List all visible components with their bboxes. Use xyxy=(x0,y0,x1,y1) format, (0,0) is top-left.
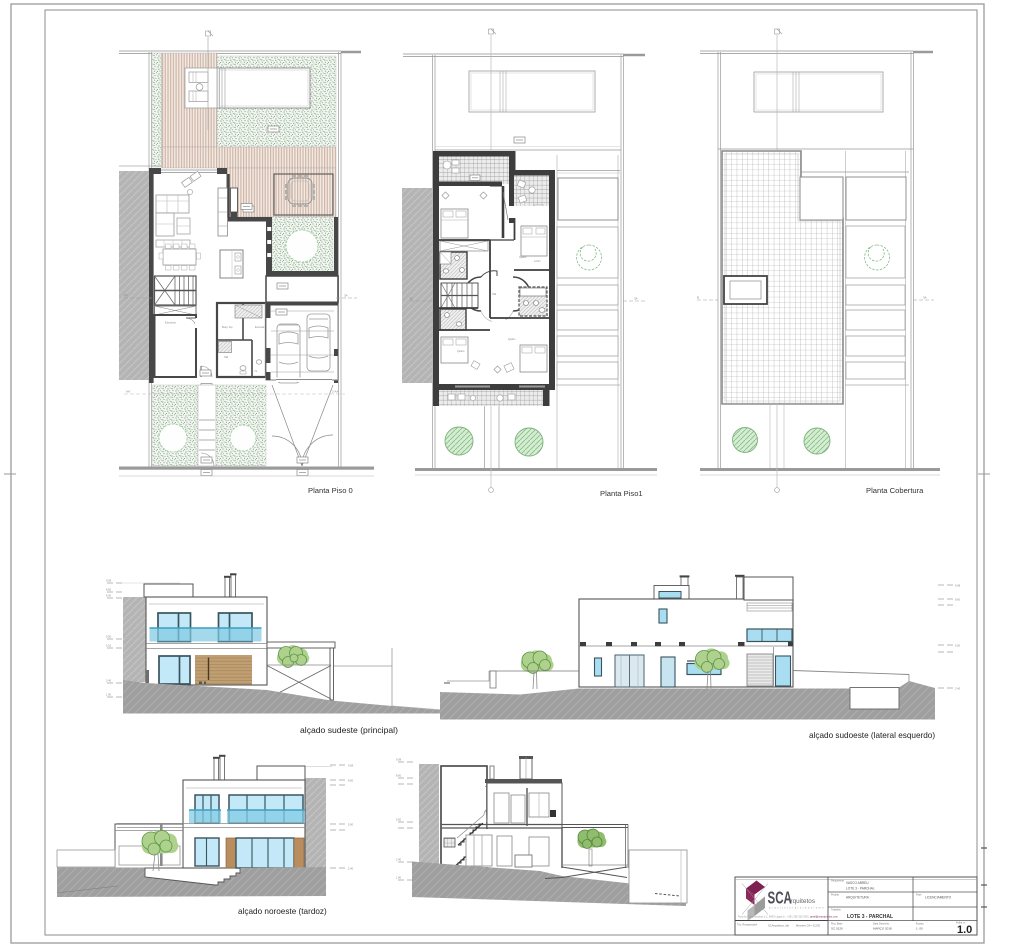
svg-text:Proj. Base: Proj. Base xyxy=(831,923,843,926)
svg-text:8.60: 8.60 xyxy=(396,774,402,778)
svg-text:1.90: 1.90 xyxy=(106,693,112,697)
svg-text:Membro OA • 11235: Membro OA • 11235 xyxy=(796,924,821,928)
svg-text:LICENCIAMENTO: LICENCIAMENTO xyxy=(925,896,952,900)
svg-text:Planta Piso1: Planta Piso1 xyxy=(600,489,643,498)
svg-text:3A: 3A xyxy=(344,294,348,298)
svg-text:9.08: 9.08 xyxy=(955,584,961,588)
svg-text:5.50: 5.50 xyxy=(955,644,961,648)
svg-text:I.S.: I.S. xyxy=(254,370,258,373)
svg-text:LOTE 3 - PARCHAL: LOTE 3 - PARCHAL xyxy=(846,887,875,891)
svg-text:Escritorio: Escritorio xyxy=(165,321,176,325)
svg-text:5.20: 5.20 xyxy=(106,644,112,648)
svg-text:5.50: 5.50 xyxy=(106,635,112,639)
svg-text:a r q u i t e t u r a | u r b: a r q u i t e t u r a | u r b a n i s m … xyxy=(769,907,824,910)
svg-text:Téc. Responsável: Téc. Responsável xyxy=(737,924,757,927)
svg-text:1.90: 1.90 xyxy=(396,876,402,880)
svg-text:alçado sudeste (principal): alçado sudeste (principal) xyxy=(300,725,398,735)
svg-text:3A: 3A xyxy=(634,297,638,301)
svg-text:8.60: 8.60 xyxy=(955,598,961,602)
svg-text:2.40: 2.40 xyxy=(955,687,961,691)
svg-text:Escala: Escala xyxy=(916,923,924,926)
svg-text:SCArquitetos, lda: SCArquitetos, lda xyxy=(768,924,789,928)
svg-text:MARÇO 2018: MARÇO 2018 xyxy=(873,927,892,931)
svg-text:rquitetos: rquitetos xyxy=(791,898,816,905)
svg-text:Escovad.: Escovad. xyxy=(255,326,265,329)
svg-text:Projeto: Projeto xyxy=(831,894,840,897)
svg-text:FF: FF xyxy=(124,294,128,298)
svg-text:Trabalho: Trabalho xyxy=(831,909,841,912)
svg-text:VASCO ABREU: VASCO ABREU xyxy=(846,881,869,885)
svg-text:Hall: Hall xyxy=(224,356,229,359)
svg-text:ARQUITETURA: ARQUITETURA xyxy=(846,896,870,900)
svg-text:Quarto: Quarto xyxy=(508,338,516,341)
svg-text:LOTE 3 - PARCHAL: LOTE 3 - PARCHAL xyxy=(847,914,893,920)
svg-text:2-AA: 2-AA xyxy=(332,390,339,394)
svg-text:9.08: 9.08 xyxy=(396,758,402,762)
svg-text:Planta Cobertura: Planta Cobertura xyxy=(866,486,924,495)
svg-text:3A: 3A xyxy=(923,296,927,300)
svg-text:B: B xyxy=(410,297,412,301)
svg-text:2.40: 2.40 xyxy=(348,867,354,871)
svg-text:2.40: 2.40 xyxy=(396,858,402,862)
svg-text:Data Desenho: Data Desenho xyxy=(873,923,890,926)
svg-text:1: 00: 1: 00 xyxy=(916,927,923,931)
svg-text:9.08: 9.08 xyxy=(348,764,354,768)
svg-text:8.60: 8.60 xyxy=(348,779,354,783)
svg-text:2.40: 2.40 xyxy=(106,679,112,683)
svg-text:Rua do Compromisso n.1, 8400 L: Rua do Compromisso n.1, 8400 Lagoa | t. … xyxy=(738,915,838,919)
svg-text:Hall: Hall xyxy=(492,293,497,296)
svg-text:Besp. Suj.: Besp. Suj. xyxy=(222,326,233,329)
svg-text:5.50: 5.50 xyxy=(348,823,354,827)
svg-text:Quarto: Quarto xyxy=(457,350,465,353)
svg-text:8.60: 8.60 xyxy=(106,588,112,592)
svg-text:Requerente: Requerente xyxy=(831,880,845,883)
svg-text:Fase: Fase xyxy=(916,894,922,897)
svg-text:9.08: 9.08 xyxy=(106,579,112,583)
svg-text:alçado sudoeste (lateral esque: alçado sudoeste (lateral esquerdo) xyxy=(809,731,935,740)
svg-text:SC 0126: SC 0126 xyxy=(831,927,843,931)
svg-text:alçado noroeste (tardoz): alçado noroeste (tardoz) xyxy=(238,907,327,916)
svg-text:Quarto: Quarto xyxy=(519,256,527,259)
svg-text:5.50: 5.50 xyxy=(396,818,402,822)
svg-text:1.0: 1.0 xyxy=(957,924,972,936)
svg-text:B: B xyxy=(697,296,699,300)
svg-text:AA': AA' xyxy=(126,390,131,394)
svg-text:12,6m: 12,6m xyxy=(534,260,541,263)
svg-text:SCA: SCA xyxy=(768,889,793,908)
svg-text:8.30: 8.30 xyxy=(106,594,112,598)
svg-text:Planta Piso 0: Planta Piso 0 xyxy=(308,486,353,495)
